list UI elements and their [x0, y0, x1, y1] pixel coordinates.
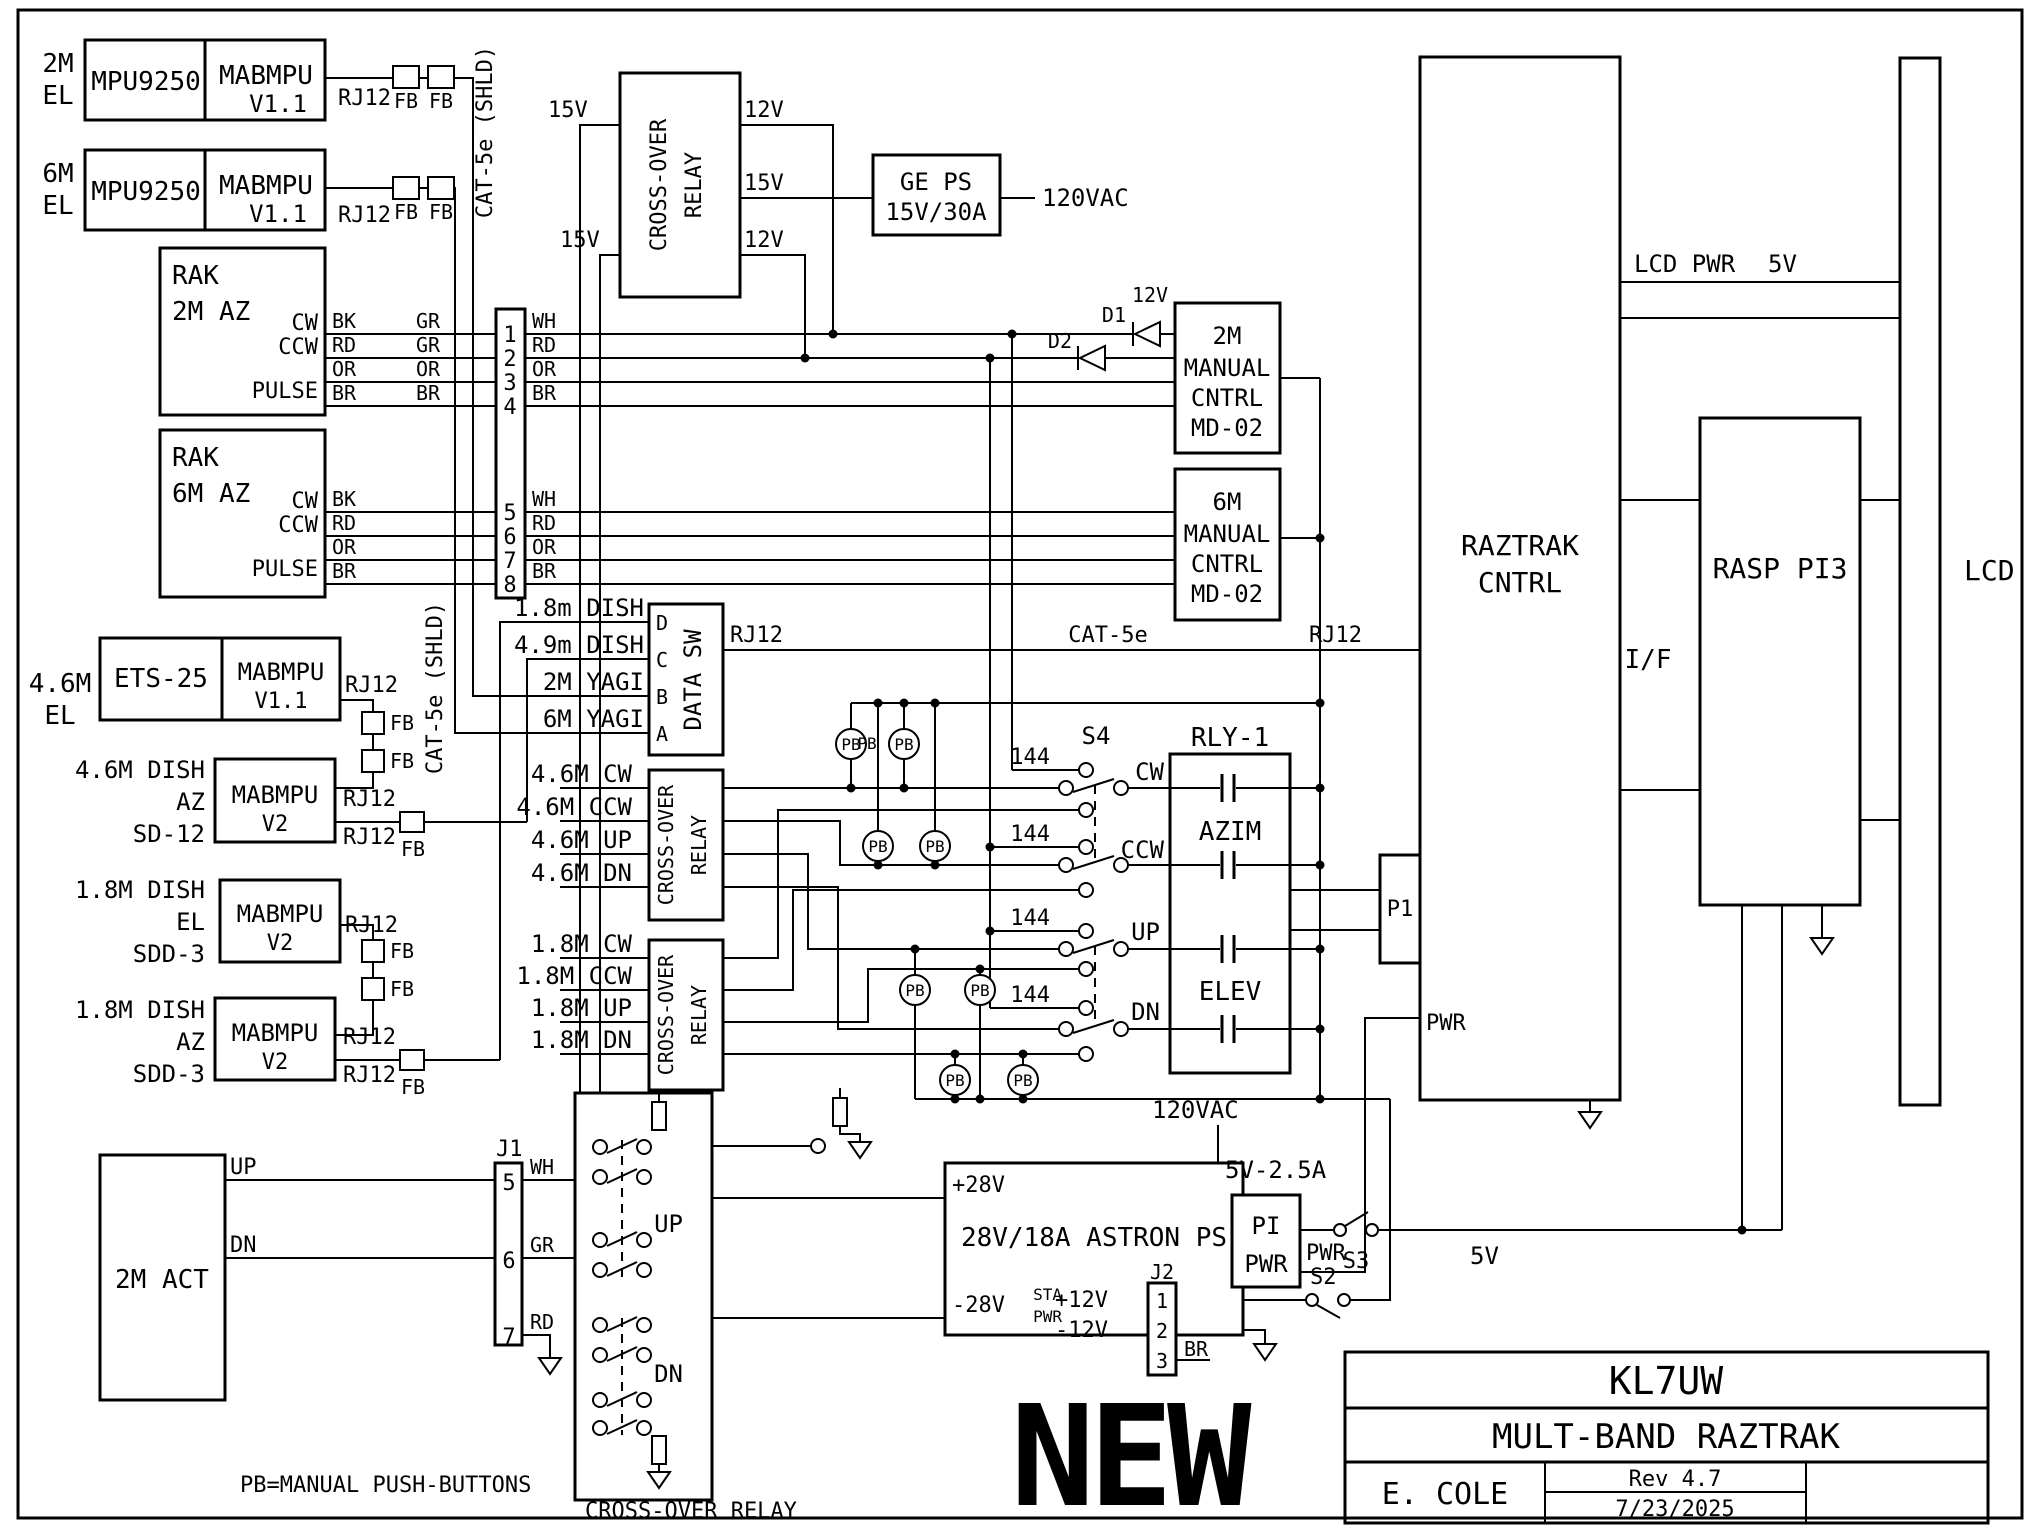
- dish-label: 1.8M DISH: [75, 876, 205, 904]
- signal-label: 1.8M CW: [531, 930, 633, 958]
- wire-color: BK: [332, 309, 356, 333]
- cat5e-label: CAT-5e: [1068, 623, 1147, 648]
- pb-note: PB=MANUAL PUSH-BUTTONS: [240, 1473, 531, 1498]
- pin-d: D: [656, 611, 668, 635]
- pin-number: 6: [502, 1249, 515, 1274]
- wire-color: RD: [332, 511, 356, 535]
- rj12-label: RJ12: [338, 203, 391, 228]
- s3-label: S3: [1343, 1249, 1370, 1274]
- pulse-label: PULSE: [252, 557, 318, 582]
- md02-label: MANUAL: [1184, 354, 1271, 382]
- band-label: EL: [42, 81, 73, 111]
- rak-label: RAK: [172, 261, 219, 291]
- fb-label: FB: [429, 89, 453, 113]
- wire-color: GR: [416, 309, 441, 333]
- signal-label: 4.6M CCW: [516, 793, 632, 821]
- wire-color: BR: [332, 381, 357, 405]
- s3-switch[interactable]: [1334, 1212, 1378, 1236]
- rating-label: 5V-2.5A: [1225, 1156, 1327, 1184]
- ge-ps-label: GE PS: [900, 168, 972, 196]
- dish-label: 4.6M DISH: [75, 756, 205, 784]
- freq-label: 144: [1010, 983, 1050, 1008]
- dn-label: DN: [1131, 998, 1160, 1026]
- relay-label: RELAY: [687, 985, 711, 1045]
- rak-band-label: 2M AZ: [172, 297, 250, 327]
- dn-label: DN: [654, 1360, 683, 1388]
- md02-band: 2M: [1213, 322, 1242, 350]
- crossover-label: CROSS-OVER: [647, 118, 672, 251]
- pin-number: 3: [1156, 1349, 1168, 1373]
- callsign: KL7UW: [1609, 1359, 1724, 1403]
- input-label: 6M YAGI: [543, 705, 644, 733]
- ccw-label: CCW: [278, 513, 318, 538]
- crossover-label: CROSS-OVER: [654, 954, 678, 1075]
- relay-label: RELAY: [682, 152, 707, 218]
- wire-color: OR: [416, 357, 441, 381]
- cw-label: CW: [292, 311, 319, 336]
- diode-d1: [1133, 322, 1160, 346]
- data-sw-label: DATA SW: [679, 629, 707, 731]
- ccw-label: CCW: [1121, 836, 1165, 864]
- input-label: 4.9m DISH: [514, 631, 644, 659]
- freq-label: 144: [1010, 745, 1050, 770]
- lcd-pwr-label: LCD PWR: [1634, 250, 1736, 278]
- ets25-label: ETS-25: [114, 664, 208, 694]
- fb-bead: [362, 712, 384, 734]
- ccw-label: CCW: [278, 335, 318, 360]
- mabmpu-label: MABMPU: [237, 900, 324, 928]
- wire-color: BR: [416, 381, 441, 405]
- rj12-label: RJ12: [345, 673, 398, 698]
- wire-color: OR: [532, 357, 557, 381]
- astron-label: 28V/18A ASTRON PS: [961, 1223, 1227, 1253]
- rj12-label: RJ12: [343, 1025, 396, 1050]
- pin-c: C: [656, 648, 668, 672]
- fb-bead: [362, 750, 384, 772]
- cat5e-shld-label: CAT-5e (SHLD): [473, 46, 498, 218]
- fb-label: FB: [390, 749, 414, 773]
- pwr-label: PWR: [1033, 1307, 1062, 1326]
- fb-bead: [393, 66, 419, 88]
- s2-switch[interactable]: [1306, 1294, 1350, 1318]
- mabmpu-label: MABMPU: [238, 658, 325, 686]
- fb-label: FB: [401, 837, 425, 861]
- fb-bead: [393, 177, 419, 199]
- signal-label: 1.8M DN: [531, 1026, 632, 1054]
- elev-label: ELEV: [1199, 977, 1262, 1007]
- vac-label: 120VAC: [1042, 184, 1129, 212]
- diode-d2: [1078, 346, 1105, 370]
- input-label: 2M YAGI: [543, 668, 644, 696]
- signal-label: 1.8M CCW: [516, 962, 632, 990]
- voltage-label: 12V: [1132, 283, 1168, 307]
- schematic-page: { "w":{"bk":"BK","rd":"RD","or":"OR","br…: [0, 0, 2040, 1540]
- pin-number: 5: [502, 1171, 515, 1196]
- fb-label: FB: [401, 1075, 425, 1099]
- act-label: 2M ACT: [115, 1265, 209, 1295]
- md02-band: 6M: [1213, 488, 1242, 516]
- wire-color: BR: [1184, 1337, 1209, 1361]
- pin-number: 1: [503, 323, 516, 348]
- wire-color: RD: [532, 333, 556, 357]
- fb-label: FB: [394, 89, 418, 113]
- pi-pwr-label: PWR: [1244, 1250, 1288, 1278]
- fb-label: FB: [394, 200, 418, 224]
- lcd-connector-box: [1900, 58, 1940, 1105]
- contact-circle: [811, 1139, 825, 1153]
- fb-bead: [400, 1050, 424, 1070]
- version-label: V2: [267, 931, 294, 956]
- rak-label: RAK: [172, 443, 219, 473]
- crossover-relay-top-box: [620, 73, 740, 297]
- wire-color: WH: [532, 309, 556, 333]
- up-label: UP: [654, 1210, 683, 1238]
- pin-number: 2: [1156, 1319, 1168, 1343]
- dn-label: DN: [230, 1233, 257, 1258]
- pb-text: PB: [1013, 1071, 1032, 1090]
- wire-color: BR: [532, 559, 557, 583]
- sta-label: STA: [1033, 1285, 1062, 1304]
- rj12-label: RJ12: [343, 787, 396, 812]
- mpu9250-label: MPU9250: [91, 67, 201, 97]
- rly1-box: [1170, 754, 1290, 1073]
- rj12-label: RJ12: [1309, 623, 1362, 648]
- signal-label: 4.6M UP: [531, 826, 632, 854]
- version-label: V1.1: [249, 90, 307, 118]
- s4-switches[interactable]: [1059, 763, 1128, 1061]
- version-label: V2: [262, 812, 289, 837]
- pb-text: PB: [945, 1071, 964, 1090]
- pin-number: 7: [503, 549, 516, 574]
- rj12-label: RJ12: [338, 86, 391, 111]
- fb-label: FB: [390, 977, 414, 1001]
- voltage-label: 5V: [1470, 1242, 1499, 1270]
- cw-label: CW: [292, 489, 319, 514]
- rasp-pi3-label: RASP PI3: [1713, 552, 1848, 585]
- interface-label: I/F: [1625, 645, 1672, 675]
- version-label: V2: [262, 1050, 289, 1075]
- vac-label: 120VAC: [1152, 1096, 1239, 1124]
- up-label: UP: [230, 1155, 257, 1180]
- axis-label: AZ: [176, 788, 205, 816]
- band-label: EL: [42, 191, 73, 221]
- signal-label: 4.6M CW: [531, 760, 633, 788]
- pin-number: 4: [503, 395, 516, 420]
- fb-bead: [362, 978, 384, 1000]
- pb-text: PB: [868, 837, 887, 856]
- raztrak-label: CNTRL: [1478, 566, 1562, 599]
- bottom-relay-caption: CROSS-OVER RELAY: [585, 1499, 797, 1524]
- rak-band-label: 6M AZ: [172, 479, 250, 509]
- azim-label: AZIM: [1199, 817, 1262, 847]
- version-label: V1.1: [249, 200, 307, 228]
- input-label: 1.8m DISH: [514, 594, 644, 622]
- pin-number: 3: [503, 371, 516, 396]
- rly1-label: RLY-1: [1191, 723, 1269, 753]
- wire-color: RD: [530, 1310, 554, 1334]
- wire-color: WH: [530, 1155, 554, 1179]
- rasp-pi3-box: [1700, 418, 1860, 905]
- wire-color: RD: [332, 333, 356, 357]
- rj12-label: RJ12: [730, 623, 783, 648]
- wire-color: GR: [530, 1233, 555, 1257]
- mpu9250-label: MPU9250: [91, 177, 201, 207]
- pin-a: A: [656, 722, 668, 746]
- version-label: V1.1: [255, 689, 308, 714]
- rj12-label: RJ12: [343, 825, 396, 850]
- pi-pwr-label: PI: [1252, 1212, 1281, 1240]
- voltage-label: +28V: [952, 1173, 1005, 1198]
- mabmpu-label: MABMPU: [232, 781, 319, 809]
- voltage-label: +12V: [1055, 1288, 1108, 1313]
- fuse: [652, 1102, 666, 1130]
- cw-label: CW: [1135, 758, 1164, 786]
- rj12-label: RJ12: [345, 913, 398, 938]
- pb-buttons[interactable]: [836, 729, 1038, 1095]
- voltage-label: 15V: [560, 228, 600, 253]
- wire-color: OR: [332, 535, 357, 559]
- wire-color: RD: [532, 511, 556, 535]
- fb-label: FB: [429, 200, 453, 224]
- fb-bead: [362, 940, 384, 962]
- d1-label: D1: [1102, 303, 1126, 327]
- axis-label: AZ: [176, 1028, 205, 1056]
- mabmpu-label: MABMPU: [232, 1019, 319, 1047]
- md02-label: MANUAL: [1184, 520, 1271, 548]
- axis-label: EL: [176, 908, 205, 936]
- fb-label: FB: [390, 939, 414, 963]
- pin-number: 2: [503, 347, 516, 372]
- voltage-label: 12V: [744, 98, 784, 123]
- date: 7/23/2025: [1615, 1497, 1734, 1522]
- j2-label: J2: [1150, 1260, 1174, 1284]
- pb-text: PB: [970, 981, 989, 1000]
- model-label: SD-12: [133, 820, 205, 848]
- pin-number: 7: [502, 1325, 515, 1350]
- author: E. COLE: [1382, 1477, 1508, 1512]
- md02-label: CNTRL: [1191, 550, 1263, 578]
- wire-color: OR: [332, 357, 357, 381]
- pb-text: PB: [894, 735, 913, 754]
- wire-color: BR: [332, 559, 357, 583]
- up-label: UP: [1131, 918, 1160, 946]
- voltage-label: 5V: [1768, 250, 1797, 278]
- wire-color: WH: [532, 487, 556, 511]
- drawing-title: MULT-BAND RAZTRAK: [1492, 1417, 1841, 1457]
- lcd-label: LCD: [1964, 554, 2015, 587]
- wire-color: OR: [532, 535, 557, 559]
- new-stamp: NEW: [1011, 1376, 1253, 1539]
- md02-label: CNTRL: [1191, 384, 1263, 412]
- voltage-label: -12V: [1055, 1318, 1108, 1343]
- voltage-label: 12V: [744, 228, 784, 253]
- pwr-label: PWR: [1306, 1241, 1346, 1266]
- wire-color: GR: [416, 333, 441, 357]
- rj12-label: RJ12: [343, 1063, 396, 1088]
- band-label: 2M: [42, 49, 73, 79]
- ge-ps-rating: 15V/30A: [885, 198, 987, 226]
- pb-text: PB: [841, 735, 860, 754]
- band-label: 4.6M: [29, 669, 92, 699]
- model-label: SDD-3: [133, 1060, 205, 1088]
- revision: Rev 4.7: [1629, 1467, 1722, 1492]
- fuse: [652, 1436, 666, 1464]
- wire-color: BK: [332, 487, 356, 511]
- band-label: 6M: [42, 159, 73, 189]
- d2-label: D2: [1048, 329, 1072, 353]
- fb-bead: [400, 812, 424, 832]
- md02-model: MD-02: [1191, 580, 1263, 608]
- raztrak-label: RAZTRAK: [1461, 529, 1579, 562]
- p1-label: P1: [1387, 897, 1414, 922]
- crossover-label: CROSS-OVER: [654, 784, 678, 905]
- fuse: [833, 1098, 847, 1126]
- fb-bead: [428, 66, 454, 88]
- pb-text: PB: [905, 981, 924, 1000]
- mabmpu-label: MABMPU: [219, 171, 313, 201]
- pin-number: 5: [503, 501, 516, 526]
- s4-label: S4: [1082, 722, 1111, 750]
- j1-label: J1: [496, 1137, 523, 1162]
- signal-label: 1.8M UP: [531, 994, 632, 1022]
- model-label: SDD-3: [133, 940, 205, 968]
- voltage-label: 15V: [744, 171, 784, 196]
- pin-number: 6: [503, 525, 516, 550]
- fb-label: FB: [390, 711, 414, 735]
- relay-label: RELAY: [687, 815, 711, 875]
- band-label: EL: [44, 701, 75, 731]
- pin-number: 1: [1156, 1289, 1168, 1313]
- s2-label: S2: [1310, 1265, 1337, 1290]
- wire-color: BR: [532, 381, 557, 405]
- voltage-label: -28V: [952, 1293, 1005, 1318]
- fb-bead: [428, 177, 454, 199]
- md02-model: MD-02: [1191, 414, 1263, 442]
- cat5e-shld-label: CAT-5e (SHLD): [423, 602, 448, 774]
- freq-label: 144: [1010, 822, 1050, 847]
- pwr-label: PWR: [1426, 1011, 1466, 1036]
- dish-label: 1.8M DISH: [75, 996, 205, 1024]
- pulse-label: PULSE: [252, 379, 318, 404]
- signal-label: 4.6M DN: [531, 859, 632, 887]
- pb-text: PB: [925, 837, 944, 856]
- pin-b: B: [656, 685, 668, 709]
- mabmpu-label: MABMPU: [219, 61, 313, 91]
- voltage-label: 15V: [548, 98, 588, 123]
- freq-label: 144: [1010, 906, 1050, 931]
